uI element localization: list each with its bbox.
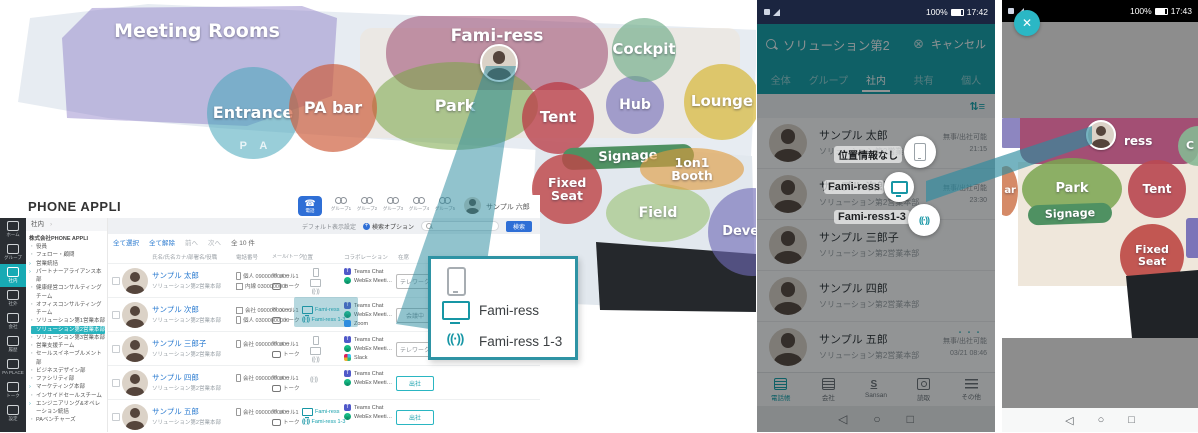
group-tab-1[interactable]: グループ1 [328, 196, 354, 212]
left-icon-rail: ホーム グループ 社内 社外 会社 履歴 PA PLACE トーク 設定 [0, 218, 26, 432]
dimmed-panel-bottom [1002, 338, 1198, 408]
row-checkbox[interactable] [112, 311, 120, 319]
smartphone-icon [914, 143, 926, 161]
teams-icon: T [344, 404, 351, 411]
phone-tab-button[interactable]: ☎電話 [298, 196, 322, 216]
tree-item[interactable]: PAベンチャーズ [31, 416, 105, 424]
home-icon [7, 221, 19, 231]
talk-link[interactable]: トーク [272, 384, 300, 392]
tree-item[interactable]: 営業統括 [31, 260, 105, 268]
mobile-icon [236, 340, 241, 348]
chat-icon [272, 283, 281, 290]
teams-icon: T [344, 336, 351, 343]
home-icon[interactable]: ○ [1098, 414, 1105, 426]
gear-icon [7, 405, 19, 415]
department-tree: 役員 フェロー・顧問 営業統括 パートナーアライアンス本部 健康経営コンサルティ… [26, 242, 107, 425]
rail-item-internal[interactable]: 社内 [0, 264, 26, 287]
zone-1on1-booth: 1on1 Booth [640, 148, 744, 190]
office-icon [7, 313, 19, 323]
location-cell: ((·)) [302, 335, 346, 363]
mobile-icon [236, 374, 241, 382]
collab-link[interactable]: TTeams Chat [344, 369, 392, 378]
rail-item-settings[interactable]: 設定 [0, 402, 26, 425]
tree-item[interactable]: インサイドセールスチーム [31, 392, 105, 400]
talk-link[interactable]: トーク [272, 418, 300, 426]
collab-link[interactable]: TTeams Chat [344, 335, 392, 344]
beacon-icon: ((·)) [302, 419, 310, 425]
tree-item[interactable]: ソリューション第1営業本部 [31, 317, 105, 325]
table-row[interactable]: サンプル 四郎 ソリューション第2営業本部 会社 09000000000 ✉メー… [108, 365, 540, 399]
tree-item[interactable]: パートナーアライアンス本部 [31, 268, 105, 285]
mail-link[interactable]: ✉メール1 [272, 272, 299, 280]
slack-icon [344, 354, 351, 361]
next-page-link[interactable]: 次へ [208, 237, 221, 247]
mail-icon: ✉ [272, 307, 277, 313]
contact-dept: ソリューション第2営業本部 [152, 282, 221, 290]
chat-icon [272, 385, 281, 392]
mobile-icon [236, 272, 241, 280]
webex-icon [344, 345, 351, 352]
status-badge: 出社 [396, 410, 434, 425]
mail-link[interactable]: ✉メール1 [272, 374, 299, 382]
avatar [122, 370, 148, 396]
monitor-icon [310, 279, 321, 287]
collab-link[interactable]: WebEx Meeti… [344, 344, 392, 353]
mail-icon: ✉ [272, 375, 277, 381]
col-presence: 在席 [398, 253, 409, 261]
zone-pa-bar: PA bar [289, 64, 377, 152]
teams-icon: T [344, 268, 351, 275]
status-badge: 出社 [396, 376, 434, 391]
chat-icon [272, 419, 281, 426]
clock: 17:43 [1171, 6, 1192, 16]
tree-item[interactable]: 役員 [31, 243, 105, 251]
webex-icon [344, 277, 351, 284]
group-icon [413, 197, 425, 205]
plus-icon: + [363, 223, 370, 230]
header-cluster: ☎電話 グループ1 グループ2 グループ3 グループ4 グループ5 サンプル 六… [298, 195, 538, 217]
select-all-link[interactable]: 全て選択 [113, 237, 139, 247]
chat-icon [272, 351, 281, 358]
mobile-icon [236, 316, 241, 324]
mail-icon: ✉ [272, 273, 277, 279]
tree-item-selected[interactable]: ソリューション第2営業本部 [31, 326, 105, 334]
row-checkbox[interactable] [112, 277, 120, 285]
contact-name[interactable]: サンプル 四郎 [152, 372, 199, 383]
rail-item-external[interactable]: 社外 [0, 287, 26, 310]
group-icon [7, 244, 19, 254]
mail-link[interactable]: ✉メール1 [272, 340, 299, 348]
smartphone-location-chip[interactable] [904, 136, 936, 168]
back-icon[interactable]: ◁ [1065, 414, 1073, 427]
collab-cell: TTeams Chat WebEx Meeti… [344, 369, 392, 387]
rail-item-talk[interactable]: トーク [0, 379, 26, 402]
status-bar: 100%17:42 [757, 0, 995, 24]
tree-item[interactable]: セールスイネーブルメント部 [31, 350, 105, 367]
building-icon [7, 267, 19, 277]
chat-icon [272, 317, 281, 324]
tree-item[interactable]: オフィスコンサルティングチーム [31, 301, 105, 318]
collab-cell: TTeams Chat WebEx Meeti… [344, 267, 392, 285]
group-tab-4[interactable]: グループ4 [406, 196, 432, 212]
battery-icon [951, 9, 964, 16]
result-count: 全 10 件 [231, 237, 255, 247]
tree-item[interactable]: ソリューション第3営業本部 [31, 334, 105, 342]
mobile-icon [313, 268, 319, 277]
row-checkbox[interactable] [112, 345, 120, 353]
group-icon [387, 197, 399, 205]
avatar [122, 302, 148, 328]
group-icon [335, 197, 347, 205]
phone-icon: ☎ [304, 199, 315, 208]
beacon-label: Fami-ress1-3 [834, 210, 910, 224]
beacon-icon: ((·)) [435, 331, 475, 346]
famiress-label: Fami-ress [824, 180, 884, 194]
no-location-label: 位置情報なし [834, 146, 902, 163]
collab-cell: TTeams Chat WebEx Meeti… Slack [344, 335, 392, 362]
col-mail-talk: メール/トーク [272, 253, 303, 260]
contact-dept: ソリューション第2営業本部 [152, 350, 221, 358]
avatar [122, 268, 148, 294]
zone-signage: Signage [1028, 203, 1113, 226]
rail-item-pa-place[interactable]: PA PLACE [0, 356, 26, 379]
group-icon [361, 197, 373, 205]
chat-icon [7, 382, 19, 392]
beacon-icon: ((·)) [312, 289, 320, 295]
teams-icon: T [344, 370, 351, 377]
pa-floor-sign: P A [226, 140, 286, 152]
signal-icon [773, 9, 780, 16]
collab-link[interactable]: Slack [344, 353, 392, 362]
tree-item[interactable]: マーケティング本部 [31, 383, 105, 391]
building-icon [236, 283, 243, 290]
group-tab-2[interactable]: グループ2 [354, 196, 380, 212]
android-nav-bar: ◁○□ [1002, 408, 1198, 432]
monitor-location-chip[interactable] [884, 172, 914, 202]
zone-hub: Hub [606, 76, 664, 134]
tree-item[interactable]: 営業支援チーム [31, 342, 105, 350]
card-icon [7, 290, 19, 300]
mobile-map-screen: 100%17:43 ✕ ress C ar Park Tent Signage … [1002, 0, 1198, 432]
beacon-icon: ((·)) [310, 377, 318, 383]
prev-page-link[interactable]: 前へ [185, 237, 198, 247]
zone-tent: Tent [1128, 160, 1186, 218]
tree-item[interactable]: エンジニアリング&オペレーション統括 [31, 400, 105, 417]
contact-name[interactable]: サンプル 太郎 [152, 270, 199, 281]
row-checkbox[interactable] [112, 413, 120, 421]
dim-overlay [757, 24, 995, 432]
battery-percent: 100% [926, 7, 948, 17]
map-pin-icon [7, 359, 19, 369]
dimmed-panel-top [1002, 22, 1198, 118]
building-icon [236, 307, 243, 314]
collab-link[interactable]: WebEx Meeti… [344, 412, 392, 421]
zone-sofa-partial [1186, 218, 1198, 258]
location-cell: ((·)) [302, 369, 346, 397]
app-logo: PHONE APPLI [28, 199, 121, 214]
rail-item-group[interactable]: グループ [0, 241, 26, 264]
location-cell[interactable]: Fami-ress ((·))Fami-ress 1-3 [302, 403, 346, 431]
search-option-link[interactable]: +検索オプション [363, 222, 414, 231]
contact-name[interactable]: サンプル 三郎子 [152, 338, 206, 349]
beacon-location-chip[interactable]: ((·)) [908, 204, 940, 236]
monitor-icon [302, 408, 313, 416]
tree-item[interactable]: フェロー・顧問 [31, 251, 105, 259]
mail-link[interactable]: ✉メール1 [272, 408, 299, 416]
webex-icon [344, 413, 351, 420]
sim-icon [1008, 8, 1014, 14]
contact-name[interactable]: サンプル 五郎 [152, 406, 199, 417]
collab-link[interactable]: WebEx Meeti… [344, 276, 392, 285]
talk-link[interactable]: トーク [272, 282, 300, 290]
row-checkbox[interactable] [112, 379, 120, 387]
sim-icon [764, 9, 770, 15]
monitor-icon [310, 347, 321, 355]
mobile-icon [236, 408, 241, 416]
tree-item[interactable]: Phone Appli Global [31, 425, 105, 426]
mail-icon: ✉ [272, 341, 277, 347]
rail-item-company[interactable]: 会社 [0, 310, 26, 333]
zone-lounge: Lounge [684, 64, 756, 140]
col-phone: 電話番号 [236, 253, 258, 261]
monitor-icon [442, 301, 470, 320]
search-button[interactable]: 検索 [506, 221, 532, 232]
zone-tent: Tent [522, 82, 594, 154]
callout-beacon-label: Fami-ress 1-3 [479, 334, 562, 349]
col-name: 氏名/氏名カナ/部署名/役職 [152, 253, 217, 261]
department-tree-panel: 社内 株式会社PHONE APPLI 役員 フェロー・顧問 営業統括 パートナー… [26, 218, 108, 432]
avatar [122, 404, 148, 430]
tree-item[interactable]: 健康経営コンサルティングチーム [31, 284, 105, 301]
tree-item[interactable]: ビジネスデザイン部 [31, 367, 105, 375]
col-collaboration: コラボレーション [344, 253, 388, 261]
battery-percent: 100% [1130, 6, 1152, 16]
clear-all-link[interactable]: 全て解除 [149, 237, 175, 247]
clock: 17:42 [967, 7, 988, 17]
collab-link[interactable]: WebEx Meeti… [344, 378, 392, 387]
col-location: 位置 [302, 253, 313, 261]
location-cell: ((·)) [302, 267, 346, 295]
beacon-icon: ((·)) [312, 357, 320, 363]
contact-dept: ソリューション第2営業本部 [152, 418, 221, 426]
location-legend-callout: Fami-ress ((·)) Fami-ress 1-3 [428, 256, 578, 360]
collab-link[interactable]: TTeams Chat [344, 267, 392, 276]
webex-icon [344, 379, 351, 386]
mail-icon: ✉ [272, 409, 277, 415]
monitor-icon [891, 181, 908, 194]
breadcrumb: 社内 [26, 218, 107, 231]
dark-corridor [1126, 270, 1198, 338]
clock-icon [7, 336, 19, 346]
contact-dept: ソリューション第2営業本部 [152, 316, 221, 324]
avatar [122, 336, 148, 362]
rail-item-history[interactable]: 履歴 [0, 333, 26, 356]
contact-name[interactable]: サンプル 次郎 [152, 304, 199, 315]
recents-icon[interactable]: □ [1128, 414, 1135, 426]
smartphone-icon [447, 267, 466, 296]
company-root[interactable]: 株式会社PHONE APPLI [26, 231, 107, 242]
battery-icon [1155, 8, 1168, 15]
default-display-link[interactable]: デフォルト表示設定 [302, 222, 356, 231]
location-cell-highlight [294, 297, 358, 327]
talk-link[interactable]: トーク [272, 350, 300, 358]
contact-dept: ソリューション第2営業本部 [152, 384, 221, 392]
tree-item[interactable]: ファシリティ部 [31, 375, 105, 383]
callout-monitor-label: Fami-ress [479, 303, 539, 318]
collab-cell: TTeams Chat WebEx Meeti… [344, 403, 392, 421]
rail-item-home[interactable]: ホーム [0, 218, 26, 241]
collab-link[interactable]: TTeams Chat [344, 403, 392, 412]
zone-field: Field [606, 184, 710, 242]
zone-cockpit: Cockpit [612, 18, 676, 82]
mobile-icon [313, 336, 319, 345]
zone-fixed-seat: Fixed Seat [532, 154, 602, 224]
table-row[interactable]: サンプル 五郎 ソリューション第2営業本部 会社 09000000000 ✉メー… [108, 399, 540, 433]
group-tab-3[interactable]: グループ3 [380, 196, 406, 212]
close-button[interactable]: ✕ [1014, 10, 1040, 36]
